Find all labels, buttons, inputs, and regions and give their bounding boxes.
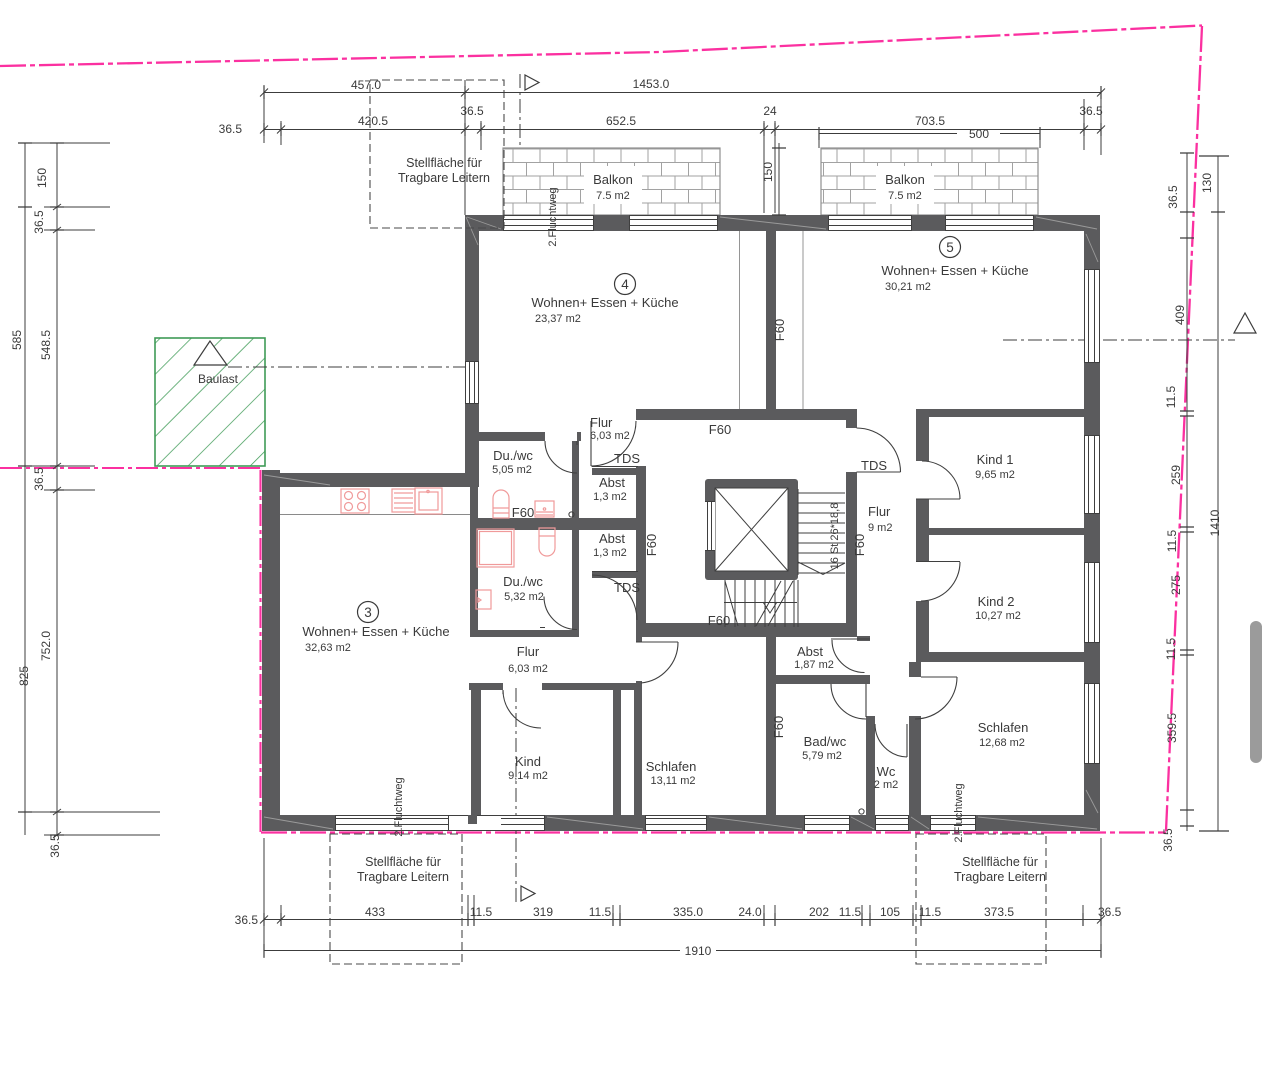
svg-text:Abst: Abst xyxy=(797,644,823,659)
svg-text:12,68 m2: 12,68 m2 xyxy=(979,737,1025,749)
svg-text:Wohnen+ Essen + Küche: Wohnen+ Essen + Küche xyxy=(881,263,1028,278)
svg-text:1410: 1410 xyxy=(1208,509,1222,536)
svg-text:9,14 m2: 9,14 m2 xyxy=(508,770,548,782)
svg-text:16 St 26*18,8: 16 St 26*18,8 xyxy=(829,503,841,570)
svg-text:1,3 m2: 1,3 m2 xyxy=(593,547,627,559)
svg-text:548.5: 548.5 xyxy=(39,330,53,360)
svg-text:420.5: 420.5 xyxy=(358,114,388,128)
svg-text:3: 3 xyxy=(364,605,372,620)
svg-text:Abst: Abst xyxy=(599,475,625,490)
svg-text:Schlafen: Schlafen xyxy=(646,759,697,774)
svg-text:36.5: 36.5 xyxy=(1098,905,1122,919)
svg-text:10,27 m2: 10,27 m2 xyxy=(975,610,1021,622)
svg-text:11.5: 11.5 xyxy=(839,905,862,919)
svg-text:335.0: 335.0 xyxy=(673,905,703,919)
svg-text:500: 500 xyxy=(969,127,989,141)
svg-text:359.5: 359.5 xyxy=(1165,713,1179,743)
svg-text:130: 130 xyxy=(1200,173,1214,193)
svg-text:1453.0: 1453.0 xyxy=(633,77,670,91)
svg-text:Du./wc: Du./wc xyxy=(503,574,543,589)
svg-text:F60: F60 xyxy=(512,505,534,520)
svg-text:Tragbare Leitern: Tragbare Leitern xyxy=(954,870,1046,884)
svg-text:11.5: 11.5 xyxy=(919,905,942,919)
svg-text:Kind 1: Kind 1 xyxy=(977,452,1014,467)
svg-text:32,63 m2: 32,63 m2 xyxy=(305,642,351,654)
svg-text:24.0: 24.0 xyxy=(738,905,762,919)
svg-text:Stellfläche für: Stellfläche für xyxy=(962,855,1038,869)
svg-text:Balkon: Balkon xyxy=(885,172,925,187)
svg-text:11.5: 11.5 xyxy=(470,905,493,919)
svg-text:7.5 m2: 7.5 m2 xyxy=(888,190,922,202)
svg-text:2.Fluchtweg: 2.Fluchtweg xyxy=(547,187,559,246)
svg-text:1,3 m2: 1,3 m2 xyxy=(593,491,627,503)
svg-text:11.5: 11.5 xyxy=(1164,637,1178,660)
svg-text:9 m2: 9 m2 xyxy=(868,522,892,534)
svg-text:F60: F60 xyxy=(772,319,787,341)
svg-text:1910: 1910 xyxy=(685,944,712,958)
svg-text:36.5: 36.5 xyxy=(219,122,243,136)
svg-text:5,05 m2: 5,05 m2 xyxy=(492,464,532,476)
svg-text:Bad/wc: Bad/wc xyxy=(804,734,847,749)
svg-text:409: 409 xyxy=(1173,305,1187,325)
svg-text:Schlafen: Schlafen xyxy=(978,720,1029,735)
svg-text:Stellfläche für: Stellfläche für xyxy=(365,855,441,869)
svg-text:11.5: 11.5 xyxy=(589,905,612,919)
svg-text:TDS: TDS xyxy=(861,458,887,473)
svg-text:11.5: 11.5 xyxy=(1164,385,1178,408)
svg-text:703.5: 703.5 xyxy=(915,114,945,128)
svg-text:36.5: 36.5 xyxy=(1079,104,1103,118)
svg-text:9,65 m2: 9,65 m2 xyxy=(975,469,1015,481)
svg-text:TDS: TDS xyxy=(614,580,640,595)
svg-text:Wc: Wc xyxy=(877,764,896,779)
svg-text:Flur: Flur xyxy=(517,644,540,659)
svg-text:2.Fluchtweg: 2.Fluchtweg xyxy=(953,783,965,842)
svg-text:36.5: 36.5 xyxy=(460,104,484,118)
svg-text:4: 4 xyxy=(621,277,629,292)
svg-text:2 m2: 2 m2 xyxy=(874,779,898,791)
svg-text:150: 150 xyxy=(761,162,775,182)
svg-text:275: 275 xyxy=(1169,575,1183,595)
svg-text:Wohnen+ Essen + Küche: Wohnen+ Essen + Küche xyxy=(531,295,678,310)
svg-text:652.5: 652.5 xyxy=(606,114,636,128)
svg-text:F60: F60 xyxy=(708,613,730,628)
svg-text:433: 433 xyxy=(365,905,385,919)
svg-text:13,11 m2: 13,11 m2 xyxy=(650,775,695,787)
svg-text:36.5: 36.5 xyxy=(32,210,46,234)
svg-text:Tragbare Leitern: Tragbare Leitern xyxy=(398,171,490,185)
svg-text:Kind: Kind xyxy=(515,754,541,769)
svg-text:Kind 2: Kind 2 xyxy=(978,594,1015,609)
svg-text:373.5: 373.5 xyxy=(984,905,1014,919)
svg-text:36.5: 36.5 xyxy=(48,834,62,858)
svg-text:752.0: 752.0 xyxy=(39,631,53,661)
svg-text:2.Fluchtweg: 2.Fluchtweg xyxy=(393,777,405,836)
svg-text:Balkon: Balkon xyxy=(593,172,633,187)
svg-text:F60: F60 xyxy=(771,716,786,738)
svg-text:319: 319 xyxy=(533,905,553,919)
svg-text:36.5: 36.5 xyxy=(32,467,46,491)
svg-text:150: 150 xyxy=(35,168,49,188)
svg-text:Baulast: Baulast xyxy=(198,372,239,386)
svg-text:11.5: 11.5 xyxy=(1165,529,1179,552)
svg-text:585: 585 xyxy=(10,330,24,350)
svg-text:23,37 m2: 23,37 m2 xyxy=(535,313,581,325)
svg-text:30,21 m2: 30,21 m2 xyxy=(885,281,931,293)
svg-text:825: 825 xyxy=(17,666,31,686)
svg-text:457.0: 457.0 xyxy=(351,78,381,92)
svg-text:24: 24 xyxy=(763,104,777,118)
svg-text:F60: F60 xyxy=(709,422,731,437)
svg-text:Flur: Flur xyxy=(868,504,891,519)
svg-text:36.5: 36.5 xyxy=(235,913,259,927)
svg-text:Wohnen+ Essen + Küche: Wohnen+ Essen + Küche xyxy=(302,624,449,639)
svg-text:7.5 m2: 7.5 m2 xyxy=(596,190,630,202)
svg-text:Stellfläche für: Stellfläche für xyxy=(406,156,482,170)
svg-text:F60: F60 xyxy=(644,534,659,556)
svg-text:Flur: Flur xyxy=(590,415,613,430)
svg-text:105: 105 xyxy=(880,905,900,919)
svg-text:5,32 m2: 5,32 m2 xyxy=(504,591,544,603)
svg-text:5: 5 xyxy=(946,240,954,255)
svg-text:36.5: 36.5 xyxy=(1166,185,1180,209)
svg-text:1,87 m2: 1,87 m2 xyxy=(794,659,834,671)
svg-text:F60: F60 xyxy=(852,534,867,556)
svg-text:Tragbare Leitern: Tragbare Leitern xyxy=(357,870,449,884)
svg-text:5,79 m2: 5,79 m2 xyxy=(802,750,842,762)
svg-text:6,03 m2: 6,03 m2 xyxy=(508,663,548,675)
svg-text:202: 202 xyxy=(809,905,829,919)
svg-text:TDS: TDS xyxy=(614,451,640,466)
svg-text:259: 259 xyxy=(1169,465,1183,485)
svg-text:Abst: Abst xyxy=(599,531,625,546)
svg-text:Du./wc: Du./wc xyxy=(493,448,533,463)
svg-text:6,03 m2: 6,03 m2 xyxy=(590,430,630,442)
svg-text:36.5: 36.5 xyxy=(1161,828,1175,852)
